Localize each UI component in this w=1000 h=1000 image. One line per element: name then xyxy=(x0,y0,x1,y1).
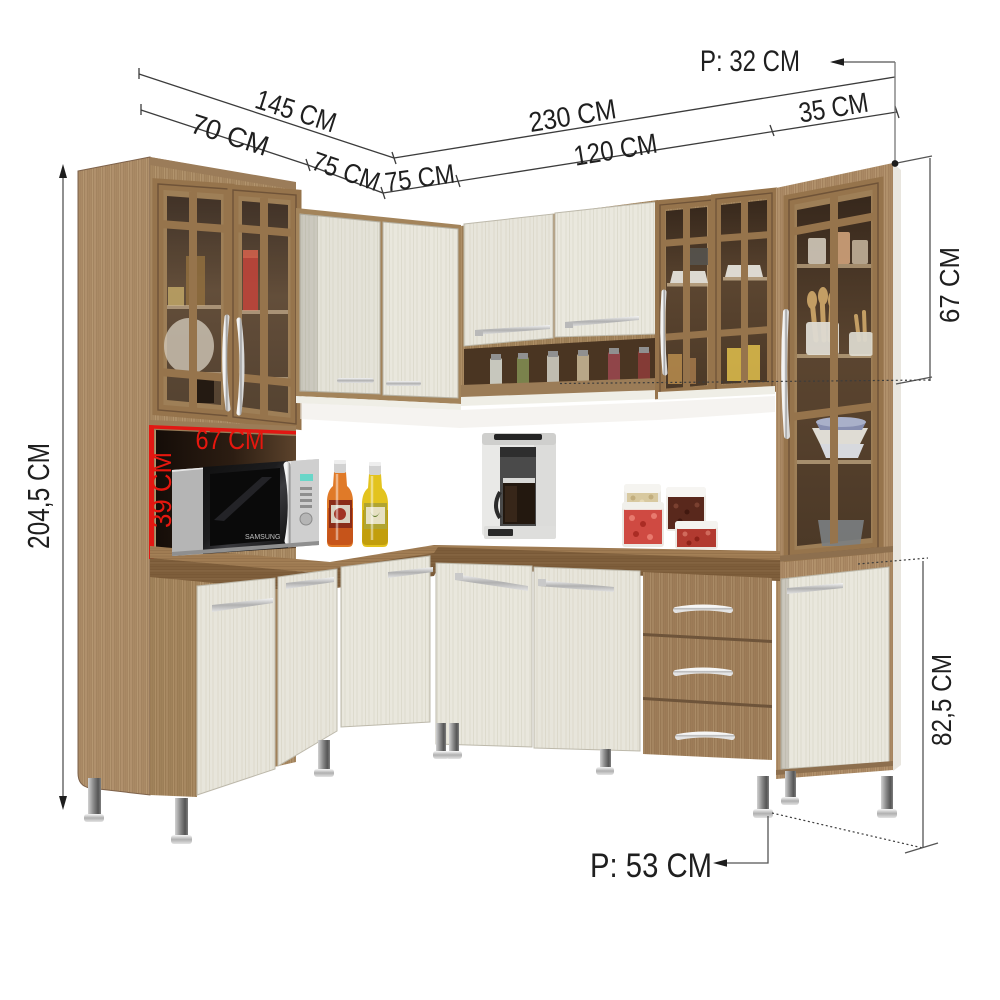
svg-text:P: 53 CM: P: 53 CM xyxy=(590,847,712,885)
svg-text:SAMSUNG: SAMSUNG xyxy=(245,534,280,541)
svg-text:67 CM: 67 CM xyxy=(196,424,265,455)
svg-text:82,5 CM: 82,5 CM xyxy=(926,654,957,746)
svg-text:67 CM: 67 CM xyxy=(934,247,965,323)
svg-text:P: 32 CM: P: 32 CM xyxy=(700,45,800,78)
svg-text:204,5 CM: 204,5 CM xyxy=(21,443,56,549)
svg-text:39 CM: 39 CM xyxy=(146,452,177,528)
